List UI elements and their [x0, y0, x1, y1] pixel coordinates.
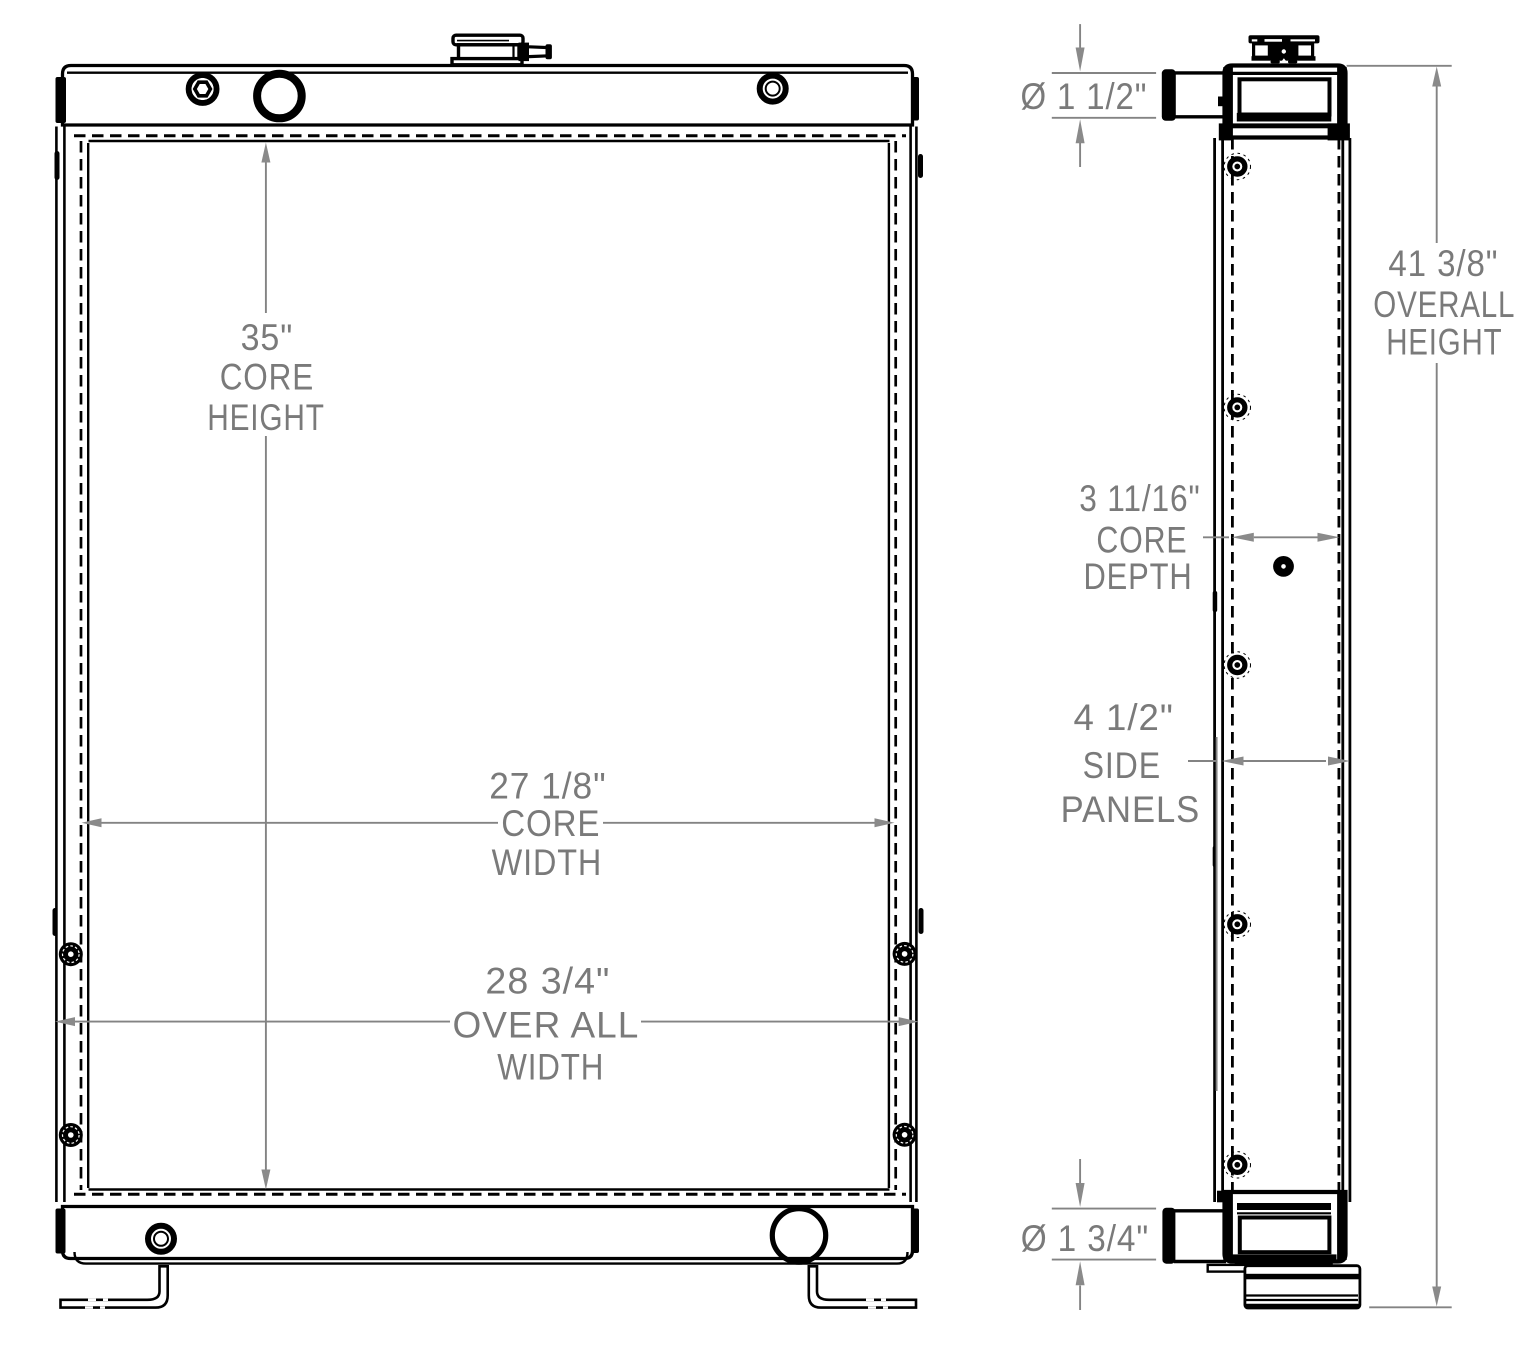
svg-text:OVERALL: OVERALL	[1373, 284, 1515, 325]
svg-text:35": 35"	[241, 317, 294, 358]
svg-text:28 3/4": 28 3/4"	[485, 961, 610, 1002]
svg-text:SIDE: SIDE	[1083, 745, 1161, 786]
svg-text:WIDTH: WIDTH	[497, 1047, 604, 1088]
svg-text:HEIGHT: HEIGHT	[1386, 322, 1502, 363]
svg-text:DEPTH: DEPTH	[1084, 556, 1193, 597]
svg-text:HEIGHT: HEIGHT	[207, 397, 324, 438]
svg-text:PANELS: PANELS	[1061, 789, 1201, 830]
svg-text:WIDTH: WIDTH	[492, 842, 603, 883]
svg-text:Ø 1 1/2": Ø 1 1/2"	[1020, 76, 1147, 117]
svg-text:3 11/16": 3 11/16"	[1079, 478, 1200, 519]
svg-text:Ø 1 3/4": Ø 1 3/4"	[1021, 1218, 1149, 1259]
svg-text:4 1/2": 4 1/2"	[1074, 697, 1174, 738]
svg-text:41 3/8": 41 3/8"	[1388, 243, 1498, 284]
svg-text:CORE: CORE	[501, 803, 600, 844]
svg-text:CORE: CORE	[220, 357, 314, 398]
svg-text:OVER ALL: OVER ALL	[453, 1005, 640, 1046]
svg-text:CORE: CORE	[1096, 520, 1187, 561]
svg-text:27 1/8": 27 1/8"	[489, 766, 606, 807]
